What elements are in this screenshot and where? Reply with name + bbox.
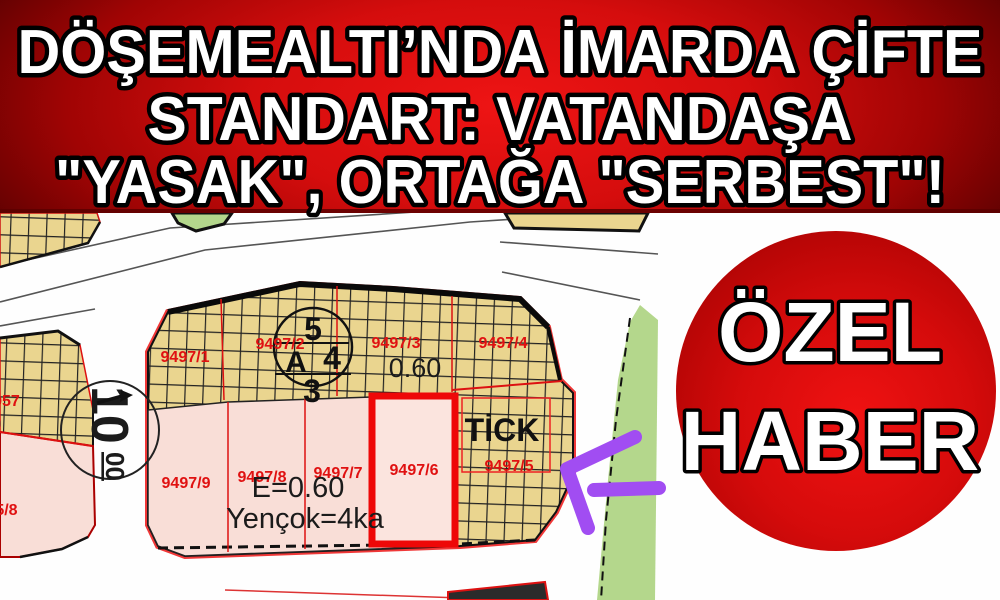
badge-text-haber: HABER <box>681 394 980 488</box>
far-formula-label: E=0.60 <box>252 472 345 504</box>
parcel-label-9497-9: 9497/9 <box>162 475 211 492</box>
parcel-label-9497-4: 9497/4 <box>479 335 528 352</box>
far-label-left: 0.60 <box>0 411 1 438</box>
far-label-top: 0.60 <box>389 353 442 383</box>
headline-line-2: STANDART: VATANDAŞA <box>148 85 853 154</box>
parcel-9495-8 <box>0 432 95 557</box>
parcel-label-9495-8: 95/8 <box>0 502 18 519</box>
block-9497: 5 A 4 3 9497/1 9497/2 9497/3 9497/4 9497… <box>148 284 573 556</box>
headline-line-3: "YASAK", ORTAĞA "SERBEST"! <box>55 148 945 217</box>
parcel-label-9497-3: 9497/3 <box>372 335 421 352</box>
ozel-haber-badge: ÖZEL HABER <box>676 231 996 551</box>
news-thumbnail: 9957 0.60 95/8 <box>0 0 1000 600</box>
parcel-label-9497-1: 9497/1 <box>161 349 210 366</box>
headline-line-1: DÖŞEMEALTI’NDA İMARDA ÇİFTE <box>18 18 983 87</box>
plan-circle-floors: 5 <box>304 311 322 347</box>
badge-circle <box>676 231 996 551</box>
left-block: 9957 0.60 95/8 <box>0 331 95 557</box>
parcel-label-9957: 9957 <box>0 393 20 410</box>
height-formula-label: Yençok=4ka <box>226 503 385 535</box>
badge-text-ozel: ÖZEL <box>718 285 942 379</box>
thumbnail-canvas: 9957 0.60 95/8 <box>0 0 1000 600</box>
headline-banner: DÖŞEMEALTI’NDA İMARDA ÇİFTE STANDART: VA… <box>0 0 1000 217</box>
parcel-label-9497-5: 9497/5 <box>485 458 534 475</box>
parcel-label-9497-2: 9497/2 <box>256 336 305 353</box>
plan-circle-bottom: 3 <box>303 373 321 409</box>
plan-circle-right: 4 <box>323 340 341 376</box>
tick-zone-label: TİCK <box>465 412 540 448</box>
parcel-label-9497-6: 9497/6 <box>390 462 439 479</box>
parcel-9957 <box>0 331 93 446</box>
road-width-sup-label: 00 <box>100 452 130 481</box>
